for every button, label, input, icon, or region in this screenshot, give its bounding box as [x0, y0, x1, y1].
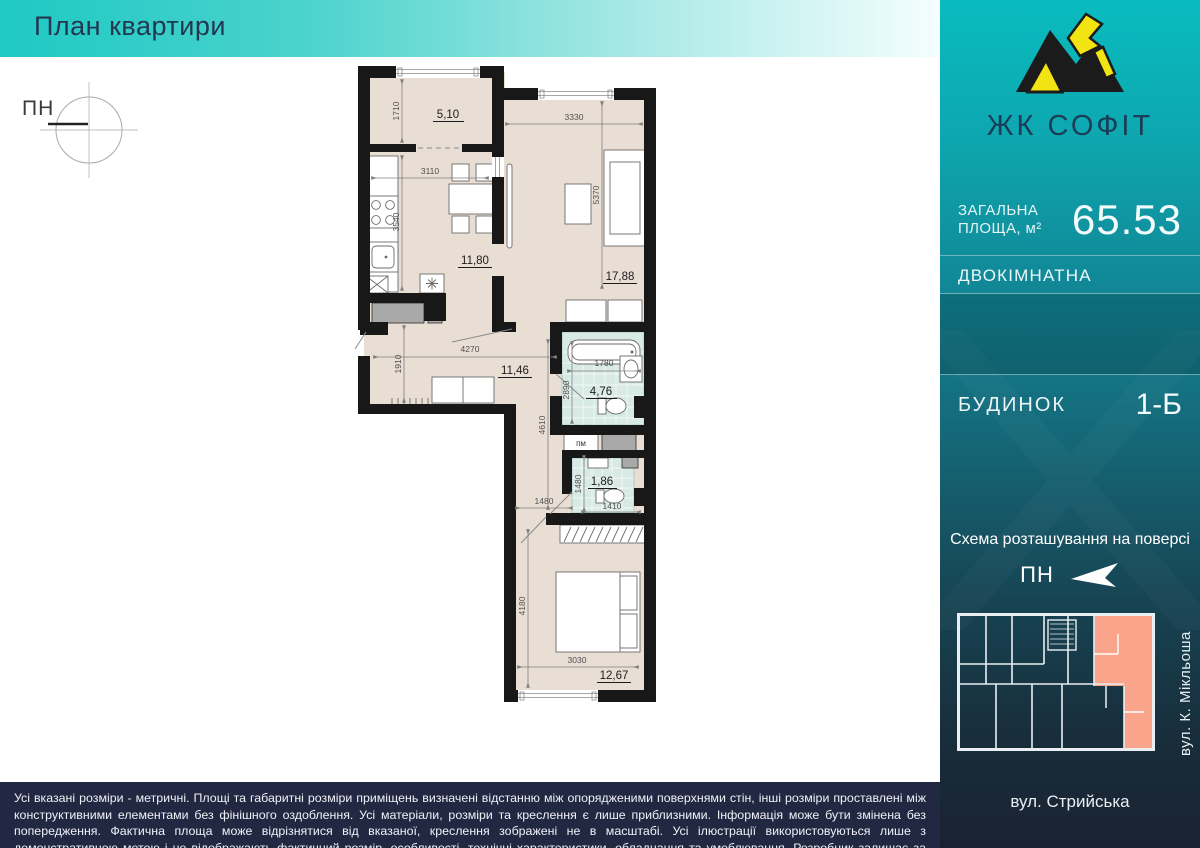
- pillow: [620, 576, 637, 610]
- stool: [476, 216, 493, 233]
- dim-kitchen-width: 3110: [421, 166, 440, 176]
- north-compass: ПН: [10, 75, 170, 185]
- dim-bedroom-width: 3030: [568, 655, 587, 665]
- info-band: [940, 294, 1200, 374]
- dim-corridor-width: 1480: [535, 496, 554, 506]
- stool: [452, 216, 469, 233]
- washing-machine-label: пм: [576, 439, 586, 448]
- total-area-row: ЗАГАЛЬНА ПЛОЩА, м² 65.53: [958, 196, 1182, 244]
- building-value: 1-Б: [1136, 388, 1182, 422]
- apartment-floorplan: 1710 3110 3540 3330 5370 4270 1910 4610 …: [355, 60, 665, 720]
- schema-north-row: ПН: [940, 562, 1200, 588]
- dim-living-height: 5370: [591, 185, 601, 204]
- area-kitchen: 11,80: [461, 255, 489, 267]
- dim-corridor-height: 4610: [537, 415, 547, 434]
- total-area-value: 65.53: [1072, 196, 1182, 244]
- wc-washbasin: [588, 458, 608, 468]
- area-bedroom: 12,67: [600, 670, 629, 682]
- living-window: [538, 88, 614, 100]
- open-door-leaf: [507, 164, 512, 248]
- building-row: БУДИНОК 1-Б: [958, 388, 1182, 422]
- toilet: [598, 398, 606, 414]
- apartment-type: ДВОКІМНАТНА: [958, 266, 1092, 286]
- pillow: [620, 614, 637, 648]
- tv-cabinet: [608, 300, 642, 322]
- area-hall: 11,46: [501, 365, 529, 377]
- page: План квартири ПН: [0, 0, 1200, 848]
- schema-stair-core: [1048, 620, 1076, 650]
- divider: [940, 255, 1200, 256]
- coffee-table: [565, 184, 591, 224]
- kitchen-table: [449, 184, 497, 214]
- dim-kitchen-height: 3540: [391, 212, 401, 231]
- dim-wc-height: 1480: [573, 474, 583, 493]
- stool: [452, 164, 469, 181]
- dim-hall-width: 4270: [461, 344, 480, 354]
- floor-schema: [956, 612, 1156, 754]
- dim-bedroom-height: 4180: [517, 596, 527, 615]
- total-area-label: ЗАГАЛЬНА ПЛОЩА, м²: [958, 202, 1042, 239]
- sidebar: ЖК СОФІТ ЗАГАЛЬНА ПЛОЩА, м² 65.53 ДВОКІМ…: [940, 0, 1200, 848]
- kitchen-pass-window: [492, 157, 504, 177]
- hall-wardrobe: [372, 303, 424, 323]
- bath-shaft: [602, 432, 636, 453]
- dim-hall-height: 1910: [393, 354, 403, 373]
- dim-wc-width: 1410: [603, 501, 622, 511]
- brand-name: ЖК СОФІТ: [940, 110, 1200, 143]
- compass-icon: [10, 75, 170, 185]
- area-bath: 4,76: [590, 386, 612, 398]
- building-label: БУДИНОК: [958, 394, 1066, 417]
- dim-bath-width: 1780: [595, 358, 614, 368]
- page-header: План квартири: [0, 0, 940, 57]
- street-label-bottom: вул. Стрийська: [940, 792, 1200, 812]
- street-label-side: вул. К. Мікльоша: [1177, 610, 1194, 756]
- dim-balcony-height: 1710: [391, 101, 401, 120]
- bedroom-window: [518, 690, 598, 702]
- dim-bath-height: 2890: [561, 380, 571, 399]
- area-wc: 1,86: [591, 476, 613, 488]
- balcony-window: [396, 66, 480, 78]
- north-arrow-icon: [1070, 562, 1120, 588]
- divider: [940, 374, 1200, 375]
- area-living: 17,88: [606, 271, 635, 283]
- page-title: План квартири: [0, 0, 940, 42]
- disclaimer-text: Усі вказані розміри - метричні. Площі та…: [0, 782, 940, 848]
- stool: [476, 164, 493, 181]
- dim-living-width: 3330: [565, 112, 584, 122]
- disclaimer-footer: Усі вказані розміри - метричні. Площі та…: [0, 782, 940, 848]
- schema-title: Схема розташування на поверсі: [940, 531, 1200, 549]
- schema-north-label: ПН: [1020, 562, 1054, 588]
- north-compass-label: ПН: [22, 97, 54, 121]
- tv-cabinet: [566, 300, 606, 322]
- brand-logo-icon: [1010, 12, 1130, 108]
- area-balcony: 5,10: [437, 109, 459, 121]
